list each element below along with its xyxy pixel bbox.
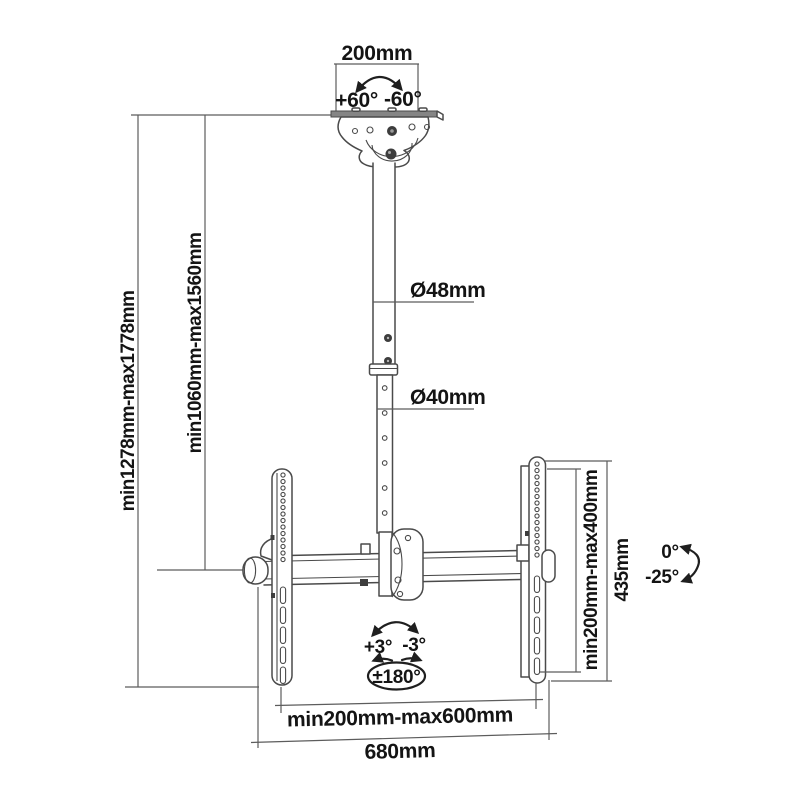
pole-height-label: min1060mm-max1560mm (185, 233, 206, 454)
ceiling-screw-head (352, 108, 360, 111)
bracket-height-label: 435mm (612, 539, 633, 602)
upper-pole-diameter-label: Ø48mm (410, 279, 486, 302)
screen-angle-tilt-label: -25° (645, 567, 679, 588)
clamp-left-plate (379, 532, 392, 596)
diagram-canvas: min1278mm-max1778mm min1060mm-max1560mm … (0, 0, 800, 800)
clamp-bolt (360, 579, 368, 586)
tilt-positive-label: +3° (364, 637, 392, 658)
vesa-vertical-label: min200mm-max400mm (581, 470, 602, 671)
mount-dimension-diagram: min1278mm-max1778mm min1060mm-max1560mm … (0, 0, 800, 800)
clamp-body (391, 529, 423, 600)
ceiling-screw-head (419, 108, 427, 111)
plate-width-label: 200mm (342, 42, 413, 65)
lower-pole (377, 375, 393, 533)
right-bar-bracket (517, 545, 529, 561)
rail-bolt (271, 535, 275, 540)
lock-bolt-highlight (388, 151, 391, 154)
screen-angle-zero-label: 0° (661, 542, 679, 563)
upper-pole (370, 163, 398, 375)
rail-bolt (525, 531, 529, 536)
clamp-screw-block (361, 544, 370, 554)
left-vesa-rail (272, 469, 292, 685)
pivot-bolt-center (390, 129, 394, 133)
rotation-range-label: ±180° (372, 667, 420, 688)
lower-pole-diameter-label: Ø40mm (410, 386, 486, 409)
right-knob (542, 550, 555, 582)
rail-bolt (271, 593, 275, 598)
tilt-negative-label: -3° (402, 635, 426, 656)
ceiling-screw-head (388, 108, 396, 111)
overall-width-label: 680mm (364, 739, 435, 764)
lock-bolt (386, 149, 397, 160)
pole-collar (370, 364, 398, 375)
overall-height-label: min1278mm-max1778mm (118, 291, 139, 512)
